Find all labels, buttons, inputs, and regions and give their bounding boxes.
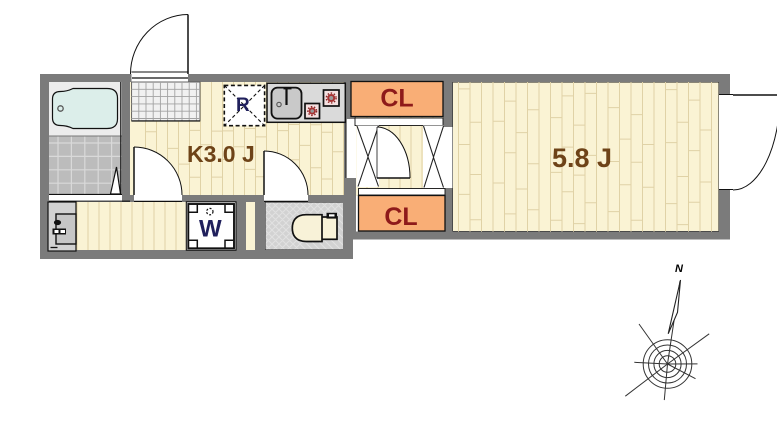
- svg-text:5.8 J: 5.8 J: [552, 143, 612, 173]
- svg-text:CL: CL: [380, 85, 413, 113]
- svg-text:CL: CL: [384, 203, 417, 231]
- svg-text:R: R: [236, 95, 250, 116]
- svg-text:K3.0 J: K3.0 J: [187, 141, 255, 167]
- svg-text:N: N: [675, 263, 684, 275]
- svg-text:W: W: [199, 216, 222, 243]
